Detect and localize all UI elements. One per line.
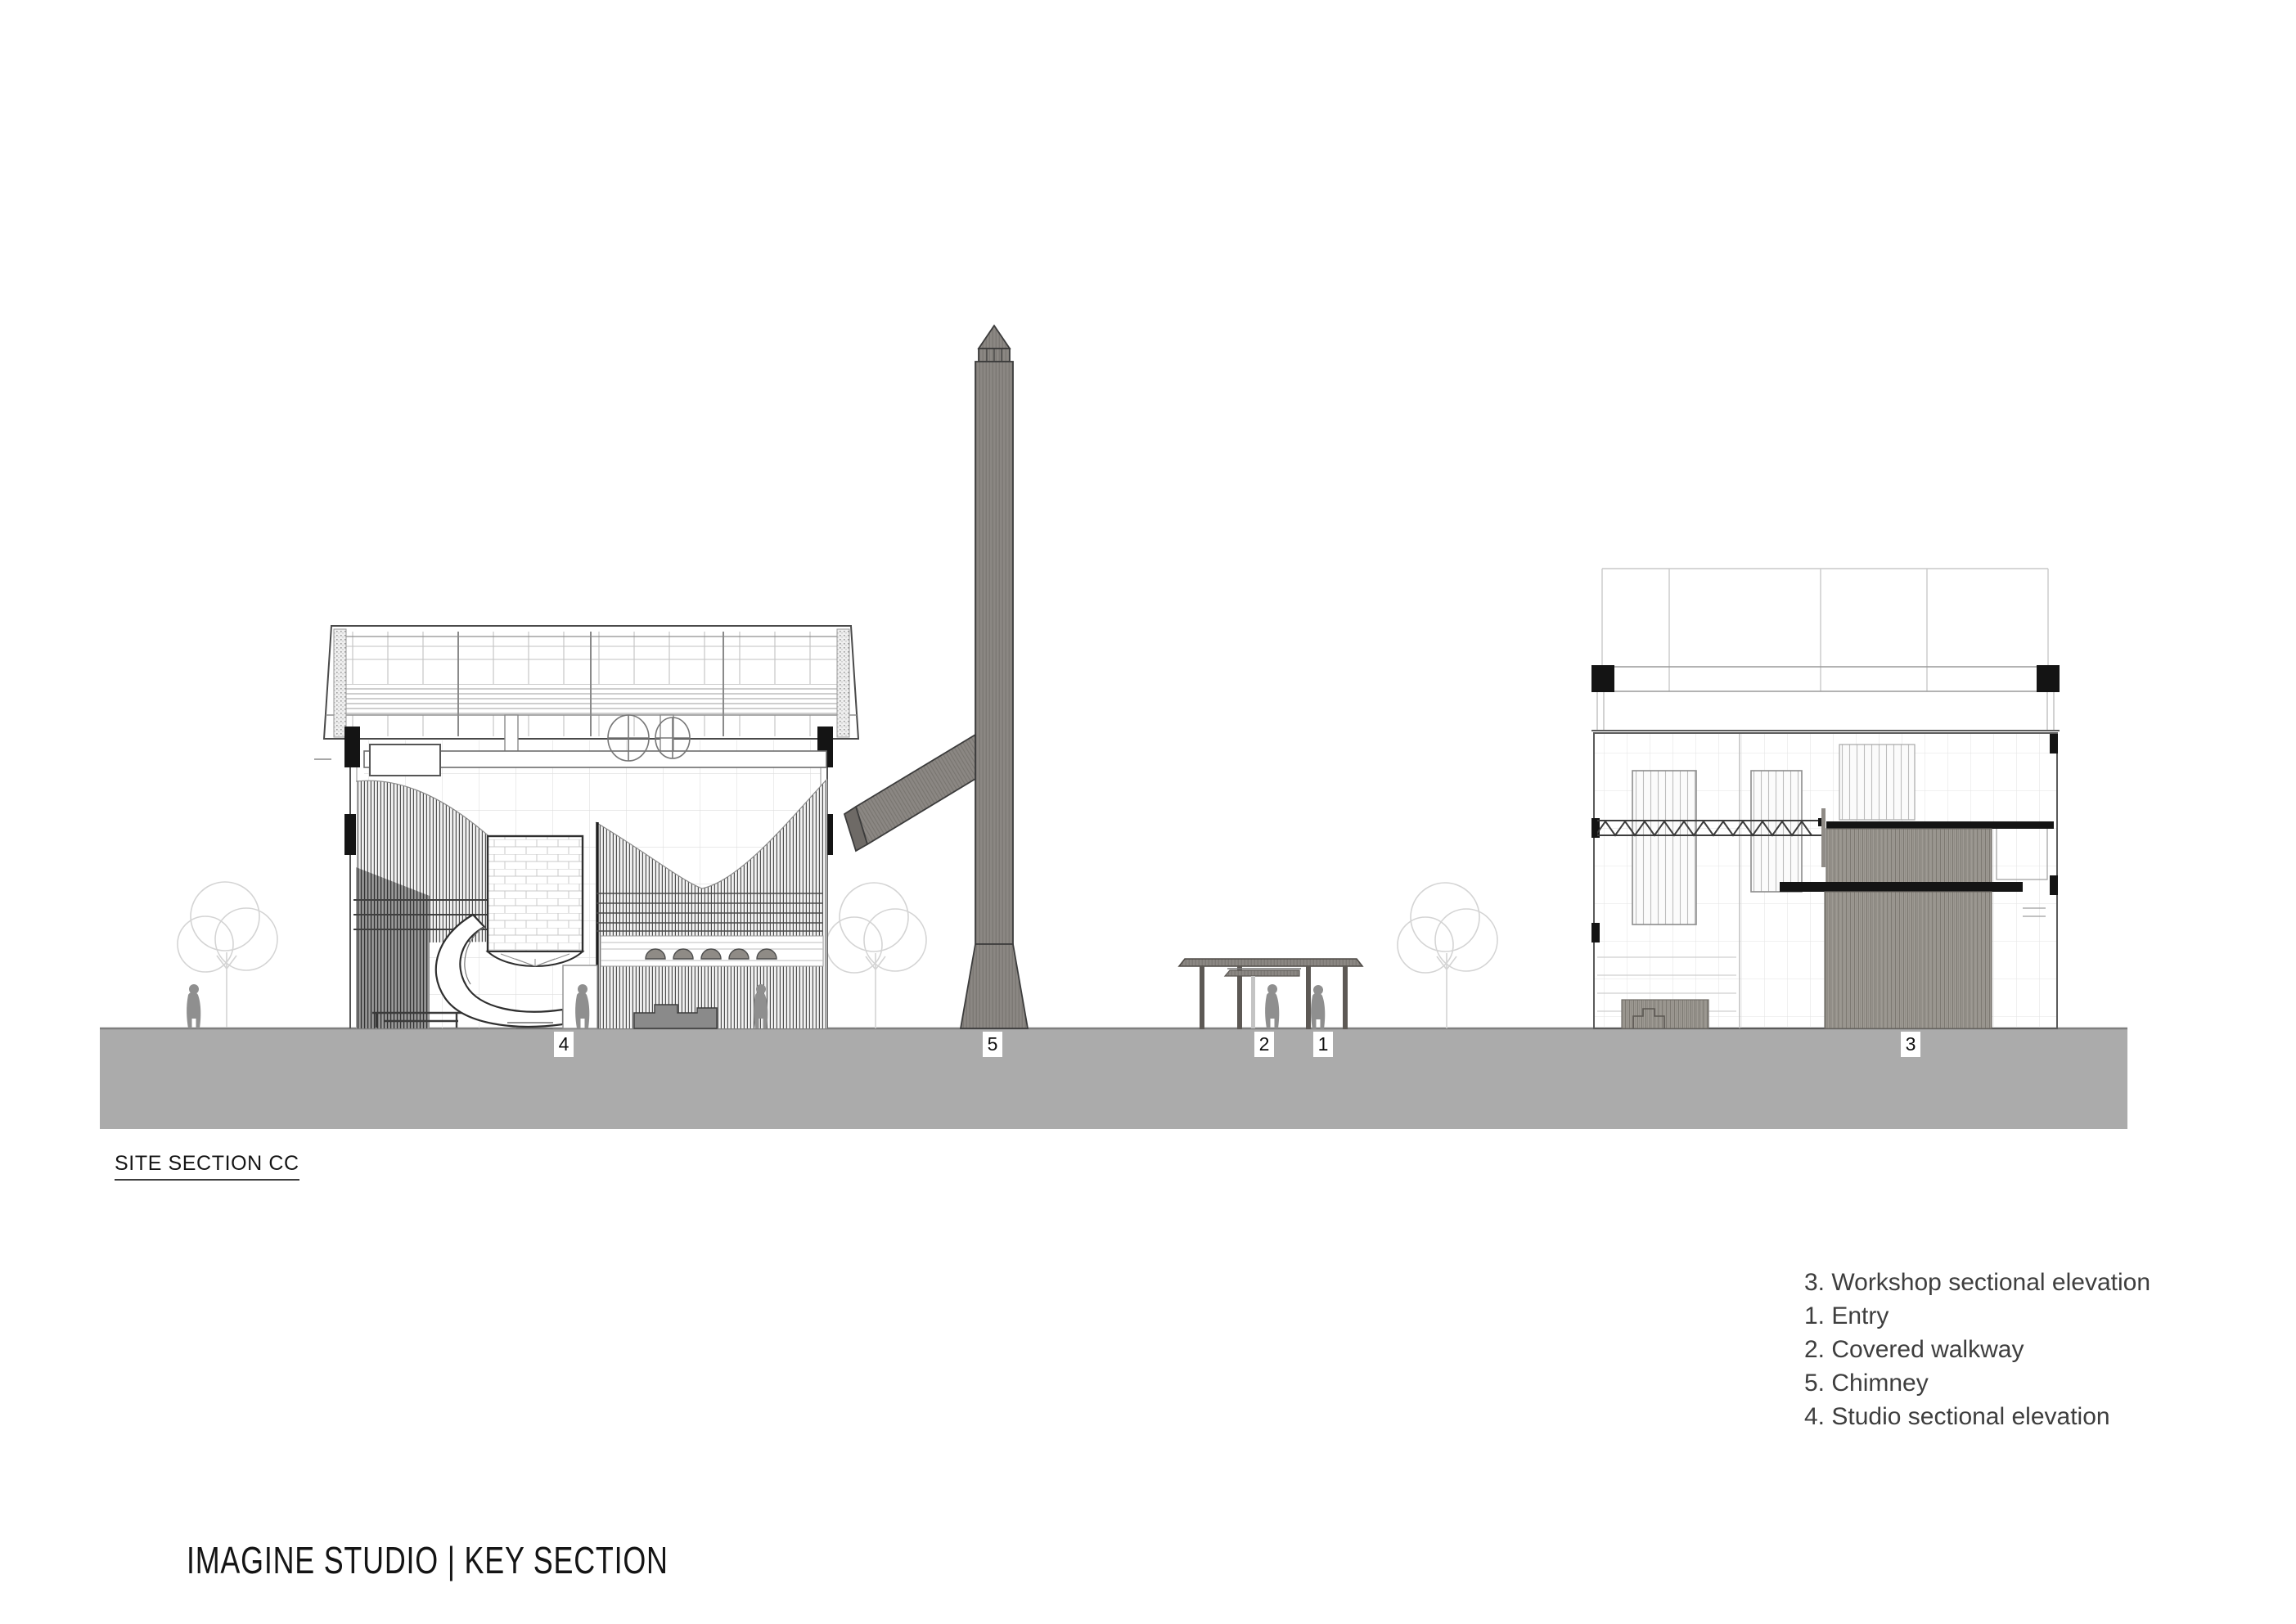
workshop-section-drawing bbox=[1591, 569, 2060, 1028]
legend-item: 3. Workshop sectional elevation bbox=[1804, 1266, 2150, 1299]
legend-item: 4. Studio sectional elevation bbox=[1804, 1400, 2150, 1433]
legend-item: 2. Covered walkway bbox=[1804, 1333, 2150, 1366]
legend-item: 1. Entry bbox=[1804, 1299, 2150, 1333]
ground-band bbox=[100, 1028, 2127, 1129]
corrugated-volume-lower bbox=[1825, 892, 1992, 1028]
keymap-marker-2: 2 bbox=[1254, 1032, 1274, 1057]
legend-item: 5. Chimney bbox=[1804, 1366, 2150, 1400]
studio-section-drawing bbox=[314, 626, 858, 1028]
keymap-marker-3: 3 bbox=[1901, 1032, 1920, 1057]
drawing-label: SITE SECTION CC bbox=[115, 1152, 299, 1181]
kiln-box bbox=[1622, 1000, 1708, 1028]
keymap-marker-1: 1 bbox=[1313, 1032, 1333, 1057]
keymap-marker-5: 5 bbox=[983, 1032, 1002, 1057]
site-section-sheet: SITE SECTION CC 3. Workshop sectional el… bbox=[0, 0, 2296, 1624]
keymap-marker-4: 4 bbox=[554, 1032, 574, 1057]
sheet-title: IMAGINE STUDIO | KEY SECTION bbox=[187, 1538, 669, 1582]
brick-block bbox=[488, 836, 583, 966]
legend: 3. Workshop sectional elevation 1. Entry… bbox=[1804, 1266, 2150, 1433]
